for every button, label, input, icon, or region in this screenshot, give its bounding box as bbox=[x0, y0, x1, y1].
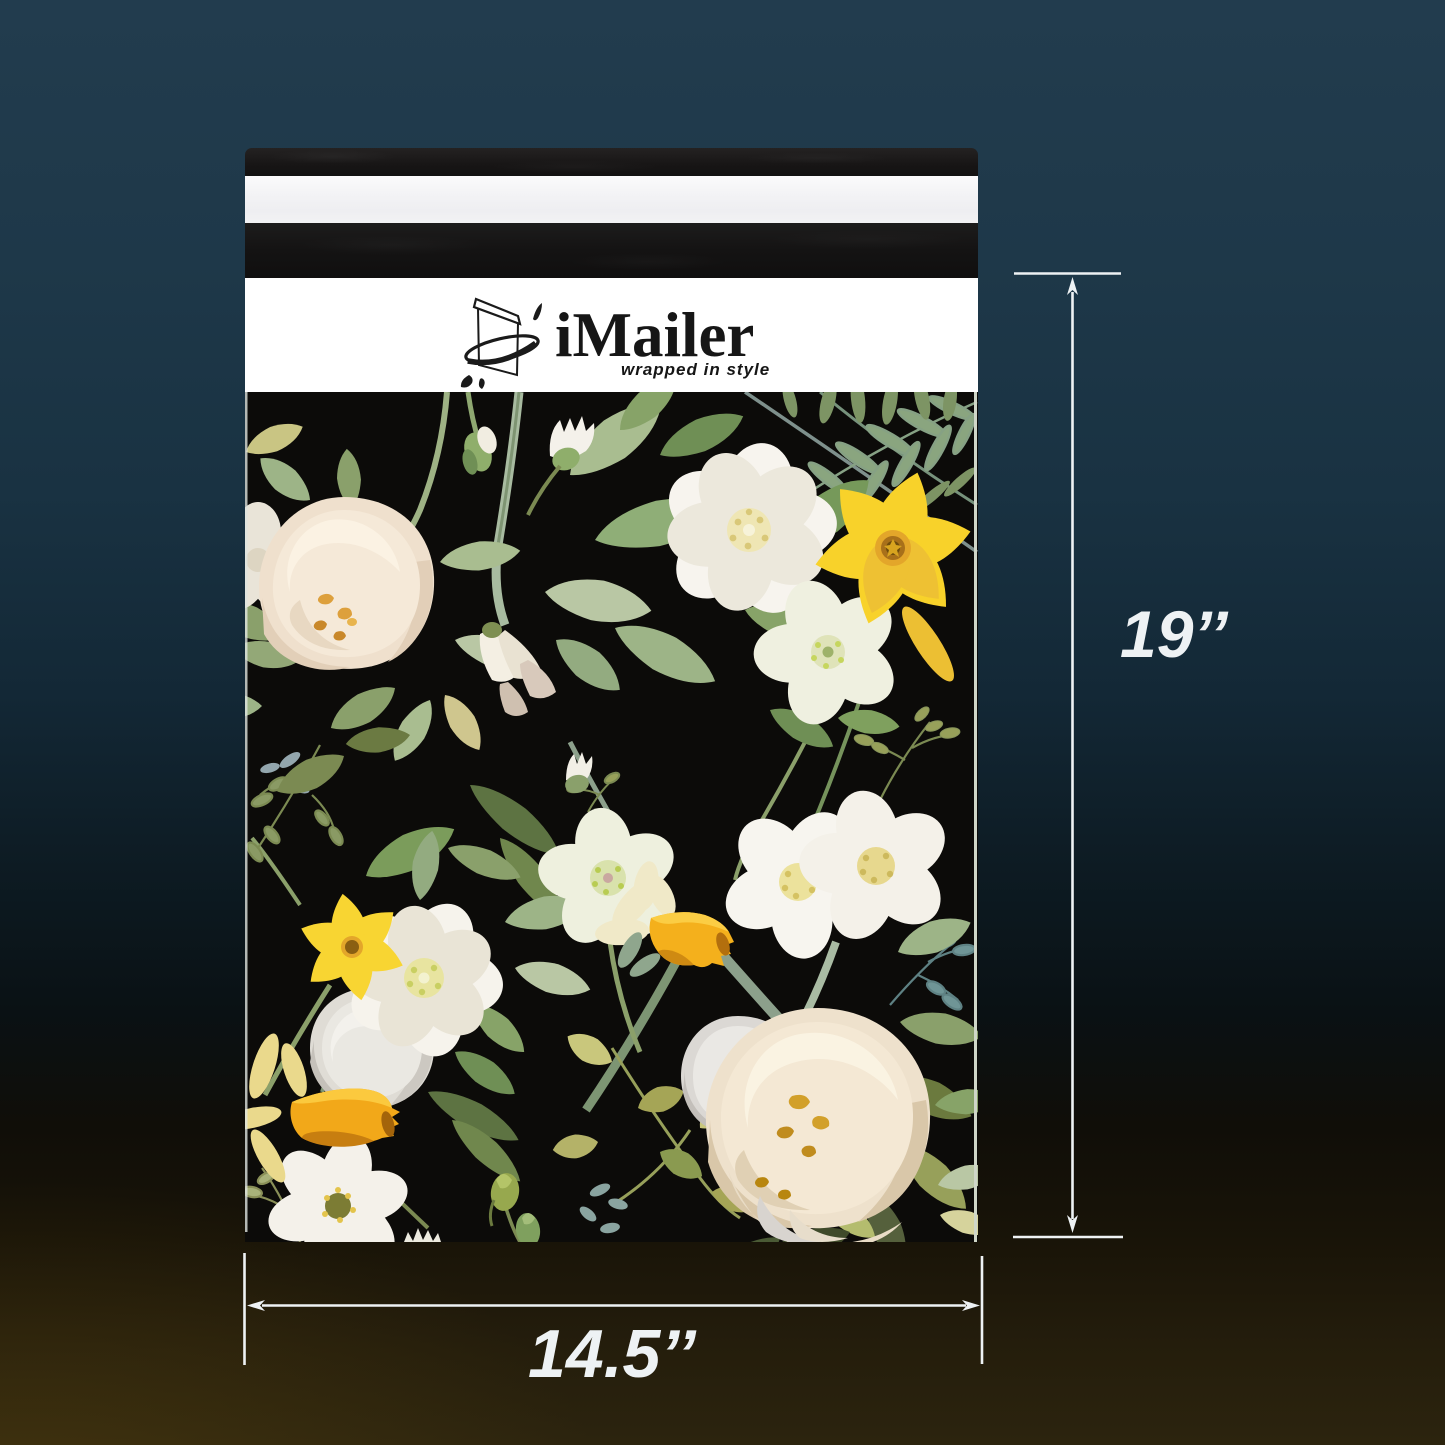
svg-text:19’’: 19’’ bbox=[1120, 597, 1229, 671]
svg-text:14.5’’: 14.5’’ bbox=[528, 1316, 697, 1392]
